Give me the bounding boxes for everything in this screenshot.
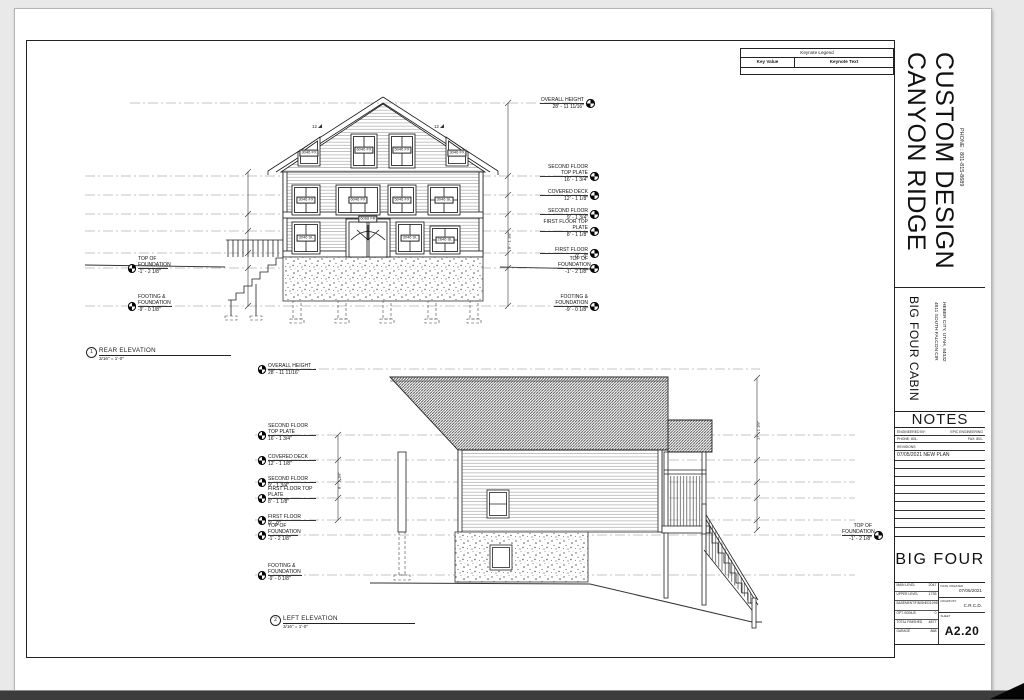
view-title-rear-elevation: 1 REAR ELEVATION 3/16" = 1'-0" bbox=[86, 347, 246, 363]
drawn-by-value: C.R.C.D. bbox=[939, 603, 985, 608]
keynote-legend-title: Keynote Legend bbox=[741, 49, 893, 58]
window-tag: 5046 FX bbox=[392, 197, 411, 204]
datum-marker-icon bbox=[258, 431, 267, 440]
keynote-empty-row bbox=[741, 68, 893, 74]
engineered-by-label: ENGINEERED BY: bbox=[897, 430, 926, 434]
level-label-overall-height: OVERALL HEIGHT28' - 11 11/16" bbox=[268, 363, 316, 376]
company-name-line2: CUSTOM DESIGN bbox=[929, 52, 958, 269]
notes-fax-label: FAX: 801- bbox=[968, 437, 983, 441]
keynote-key-value-header: Key Value bbox=[741, 58, 795, 67]
datum-marker-icon bbox=[128, 264, 137, 273]
datum-marker-icon bbox=[590, 264, 599, 273]
datum-marker-icon bbox=[258, 516, 267, 525]
notes-phone-label: PHONE: 801- bbox=[897, 437, 918, 441]
datum-marker-icon bbox=[874, 531, 883, 540]
window-tag: 3046 SL bbox=[435, 197, 454, 204]
project-name: BIG FOUR CABIN bbox=[907, 296, 921, 401]
window-tag: 3046 FX bbox=[447, 150, 466, 157]
datum-marker-icon bbox=[258, 531, 267, 540]
area-row: BASEMENT/FINISHED1095 bbox=[895, 601, 938, 610]
datum-marker-icon bbox=[590, 210, 599, 219]
revision-entry: 07/05/2021 NEW PLAN bbox=[895, 451, 985, 461]
level-label-overall-height: OVERALL HEIGHT28' - 11 11/16" bbox=[540, 97, 584, 110]
company-name-line1: CANYON RIDGE bbox=[901, 52, 930, 251]
view-number-bubble: 2 bbox=[270, 615, 281, 626]
area-table: MAIN LEVEL2047 UPPER LEVEL1735 BASEMENT/… bbox=[895, 583, 939, 645]
level-label-top-of-foundation: TOP OF FOUNDATION-1' - 2 1/8" bbox=[842, 523, 872, 542]
keynote-legend-table: Keynote Legend Key Value Keynote Text bbox=[740, 48, 894, 75]
window-tag: 6046 FX bbox=[348, 197, 367, 204]
dimension-text: 8' - 1 1/8" bbox=[337, 464, 342, 498]
level-label-second-floor-top-plate: SECOND FLOOR TOP PLATE16' - 1 3/4" bbox=[540, 164, 588, 183]
project-title: BIG FOUR bbox=[895, 551, 985, 569]
left-elevation-drawing bbox=[250, 358, 895, 638]
title-block: CANYON RIDGE CUSTOM DESIGN PHONE : 801-8… bbox=[894, 40, 985, 658]
datum-marker-icon bbox=[590, 191, 599, 200]
level-label-top-of-foundation: TOP OF FOUNDATION-1' - 2 1/8" bbox=[138, 256, 168, 275]
stamp-table: DATE CREATED 07/05/2021 DRAWN BY C.R.C.D… bbox=[939, 583, 985, 645]
window-tag: 3046 FX bbox=[296, 197, 315, 204]
title-block-project-title-section: BIG FOUR bbox=[895, 537, 985, 583]
sheet-number: A2.20 bbox=[939, 618, 985, 638]
area-row: TOTAL FINISHED4877 bbox=[895, 620, 938, 629]
window-tag: 5046 FX bbox=[392, 147, 411, 154]
company-phone: PHONE : 801-815-8689 bbox=[958, 128, 964, 186]
level-label-footing-foundation: FOOTING & FOUNDATION-9' - 0 1/8" bbox=[138, 294, 172, 313]
project-address-line1: 4811 SOUTH FALCON CIR bbox=[933, 302, 938, 361]
level-label-footing-foundation: FOOTING & FOUNDATION-9' - 0 1/8" bbox=[268, 563, 302, 582]
view-number-bubble: 1 bbox=[86, 347, 97, 358]
datum-marker-icon bbox=[258, 494, 267, 503]
datum-marker-icon bbox=[258, 456, 267, 465]
notes-title: NOTES bbox=[895, 412, 985, 428]
window-tag: 3046 SL bbox=[297, 235, 316, 242]
datum-marker-icon bbox=[258, 571, 267, 580]
title-block-company-section: CANYON RIDGE CUSTOM DESIGN PHONE : 801-8… bbox=[895, 40, 985, 288]
project-address-line2: HEBER CITY, UTAH, 84032 bbox=[941, 302, 946, 362]
scan-corner-shadow bbox=[990, 683, 1024, 699]
level-label-footing-foundation: FOOTING & FOUNDATION-9' - 0 1/8" bbox=[554, 294, 588, 313]
title-block-notes-section: NOTES ENGINEERED BY:EPIC ENGINEERING PHO… bbox=[895, 412, 985, 537]
pitch-triangle-icon bbox=[440, 124, 444, 128]
revisions-label: REVISIONS bbox=[897, 445, 915, 449]
level-label-covered-deck: COVERED DECK12' - 1 1/8" bbox=[268, 454, 316, 467]
level-label-first-floor-top-plate: FIRST FLOOR TOP PLATE8' - 1 1/8" bbox=[268, 486, 316, 505]
datum-marker-icon bbox=[128, 302, 137, 311]
datum-marker-icon bbox=[590, 249, 599, 258]
engineered-by-value: EPIC ENGINEERING bbox=[950, 430, 983, 434]
window-tag: 6046 FX bbox=[354, 147, 373, 154]
level-label-second-floor-top-plate: SECOND FLOOR TOP PLATE16' - 1 3/4" bbox=[268, 423, 316, 442]
datum-marker-icon bbox=[586, 99, 595, 108]
level-label-top-of-foundation: TOP OF FOUNDATION-1' - 2 1/8" bbox=[268, 523, 298, 542]
roof-pitch-mark: 12 bbox=[312, 124, 322, 129]
level-label-covered-deck: COVERED DECK12' - 1 1/8" bbox=[540, 189, 588, 202]
datum-marker-icon bbox=[258, 478, 267, 487]
datum-marker-icon bbox=[258, 365, 267, 374]
datum-marker-icon bbox=[590, 172, 599, 181]
title-block-stamp-section: MAIN LEVEL2047 UPPER LEVEL1735 BASEMENT/… bbox=[895, 583, 985, 645]
window-tag: 2646 SL bbox=[436, 237, 455, 244]
level-label-top-of-foundation: TOP OF FOUNDATION-1' - 2 1/8" bbox=[558, 256, 588, 275]
view-title-left-elevation: 2 LEFT ELEVATION 3/16" = 1'-0" bbox=[270, 615, 430, 631]
level-label-first-floor-top-plate: FIRST FLOOR TOP PLATE8' - 1 1/8" bbox=[540, 219, 588, 238]
area-row: GARAGE868 bbox=[895, 629, 938, 638]
area-row: UPPER LEVEL1735 bbox=[895, 592, 938, 601]
area-row: OPT. BONUS0 bbox=[895, 611, 938, 620]
dimension-text: 17' - 1 1/8" bbox=[756, 414, 761, 448]
dimension-text: 8' - 1 1/8" bbox=[507, 224, 512, 258]
title-block-project-section: BIG FOUR CABIN 4811 SOUTH FALCON CIR HEB… bbox=[895, 288, 985, 412]
datum-marker-icon bbox=[590, 227, 599, 236]
window-tag: 3046 SL bbox=[401, 235, 420, 242]
date-created-value: 07/05/2021 bbox=[939, 588, 985, 593]
door-tag: 6068 FR bbox=[358, 216, 377, 223]
window-tag: 3046 FX bbox=[299, 150, 318, 157]
roof-pitch-mark: 12 bbox=[434, 124, 444, 129]
datum-marker-icon bbox=[590, 302, 599, 311]
pitch-triangle-icon bbox=[318, 124, 322, 128]
area-row: MAIN LEVEL2047 bbox=[895, 583, 938, 592]
keynote-text-header: Keynote Text bbox=[795, 58, 893, 67]
